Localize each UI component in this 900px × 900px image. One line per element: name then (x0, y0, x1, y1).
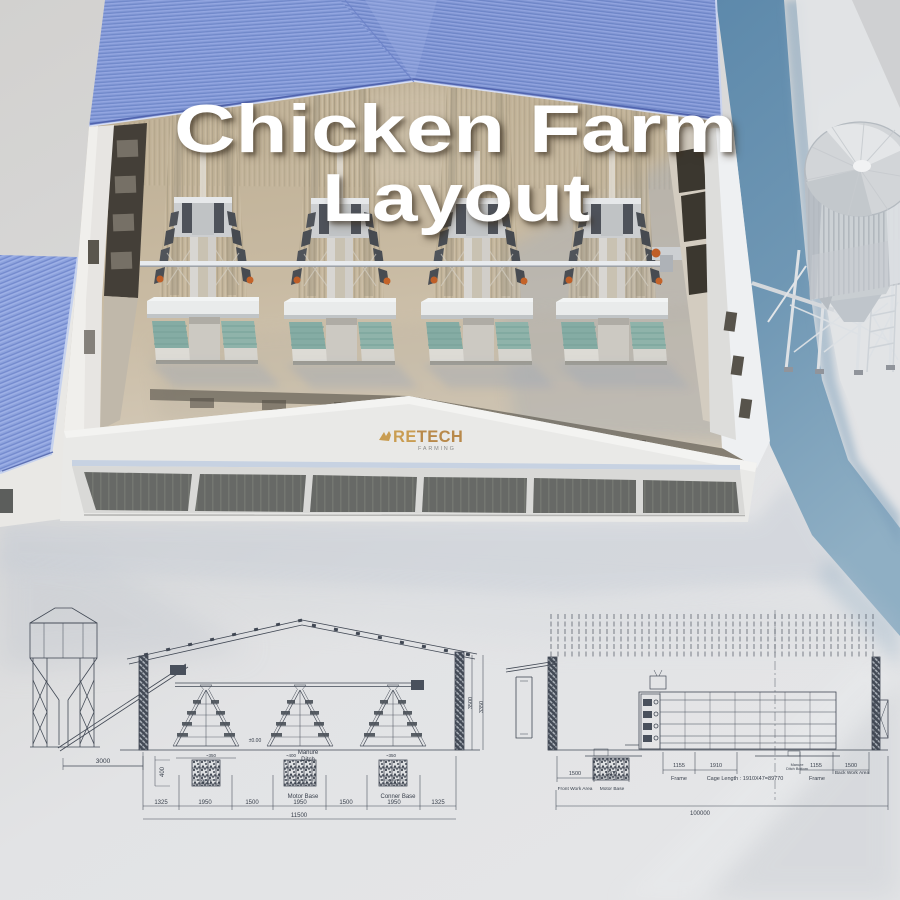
svg-text:1500: 1500 (845, 763, 857, 769)
svg-text:100000: 100000 (690, 811, 711, 817)
svg-text:Back Work Area: Back Work Area (835, 770, 870, 776)
svg-text:Ditch Bottom: Ditch Bottom (786, 767, 808, 771)
svg-text:1500: 1500 (245, 800, 259, 806)
svg-text:Cage Length : 1910X47=89770: Cage Length : 1910X47=89770 (707, 776, 784, 782)
svg-text:~350: ~350 (206, 753, 217, 758)
svg-text:800: 800 (388, 780, 399, 786)
svg-text:Frame: Frame (809, 776, 825, 782)
svg-text:Motor Base: Motor Base (600, 786, 625, 792)
svg-text:1155: 1155 (810, 763, 822, 769)
svg-text:Front Work Area: Front Work Area (558, 786, 593, 792)
svg-text:1950: 1950 (198, 800, 212, 806)
svg-text:3000: 3000 (96, 758, 111, 765)
svg-text:1200: 1200 (605, 771, 617, 777)
svg-text:800: 800 (201, 780, 212, 786)
svg-text:11500: 11500 (291, 813, 308, 819)
svg-text:1950: 1950 (293, 800, 307, 806)
svg-text:1500: 1500 (339, 800, 353, 806)
svg-text:Frame: Frame (671, 776, 687, 782)
svg-text:1950: 1950 (387, 800, 401, 806)
svg-text:Manure: Manure (298, 750, 319, 756)
svg-text:1155: 1155 (673, 763, 685, 769)
svg-text:1325: 1325 (154, 800, 168, 806)
svg-text:±0.00: ±0.00 (249, 738, 262, 744)
svg-text:3500: 3500 (468, 697, 474, 709)
svg-text:1325: 1325 (431, 800, 445, 806)
svg-text:~350: ~350 (386, 753, 397, 758)
svg-text:3350: 3350 (479, 701, 485, 713)
svg-text:1500: 1500 (569, 771, 581, 777)
svg-text:1200: 1200 (293, 780, 307, 786)
svg-text:~400: ~400 (286, 753, 297, 758)
svg-text:Ditch: Ditch (301, 757, 315, 763)
svg-text:RETECH: RETECH (393, 428, 463, 446)
svg-text:400: 400 (160, 766, 166, 777)
svg-text:FARMING: FARMING (418, 446, 456, 452)
svg-text:1910: 1910 (710, 763, 722, 769)
